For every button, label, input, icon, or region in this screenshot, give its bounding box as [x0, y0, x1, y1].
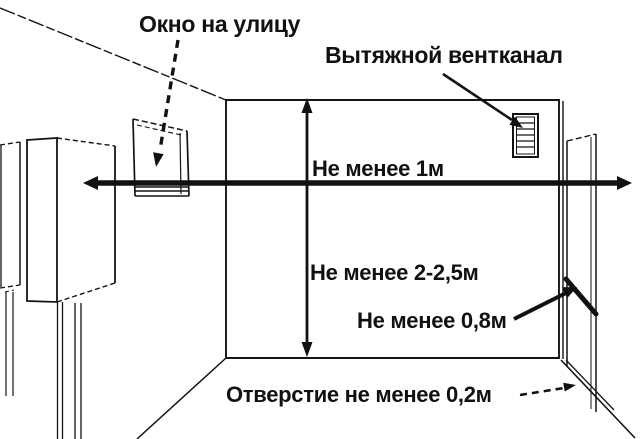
door-pointer-arrow [514, 279, 596, 319]
window-pointer-arrow [153, 40, 178, 167]
min-opening-label: Отверстие не менее 0,2м [226, 384, 492, 406]
vent-pointer-arrow [443, 74, 523, 128]
left-panel [0, 142, 20, 396]
boiler [27, 138, 115, 302]
opening-pointer-arrow [520, 383, 576, 395]
height-arrow [302, 98, 313, 357]
window-label: Окно на улицу [139, 13, 300, 36]
min-width-label: Не менее 1м [312, 158, 444, 180]
min-height-label: Не менее 2-2,5м [310, 262, 479, 284]
boiler-pipes [58, 302, 82, 439]
diagram-canvas: Окно на улицу Вытяжной вентканал Не мене… [0, 0, 640, 439]
vent-label: Вытяжной вентканал [325, 44, 563, 67]
min-door-label: Не менее 0,8м [357, 310, 507, 332]
